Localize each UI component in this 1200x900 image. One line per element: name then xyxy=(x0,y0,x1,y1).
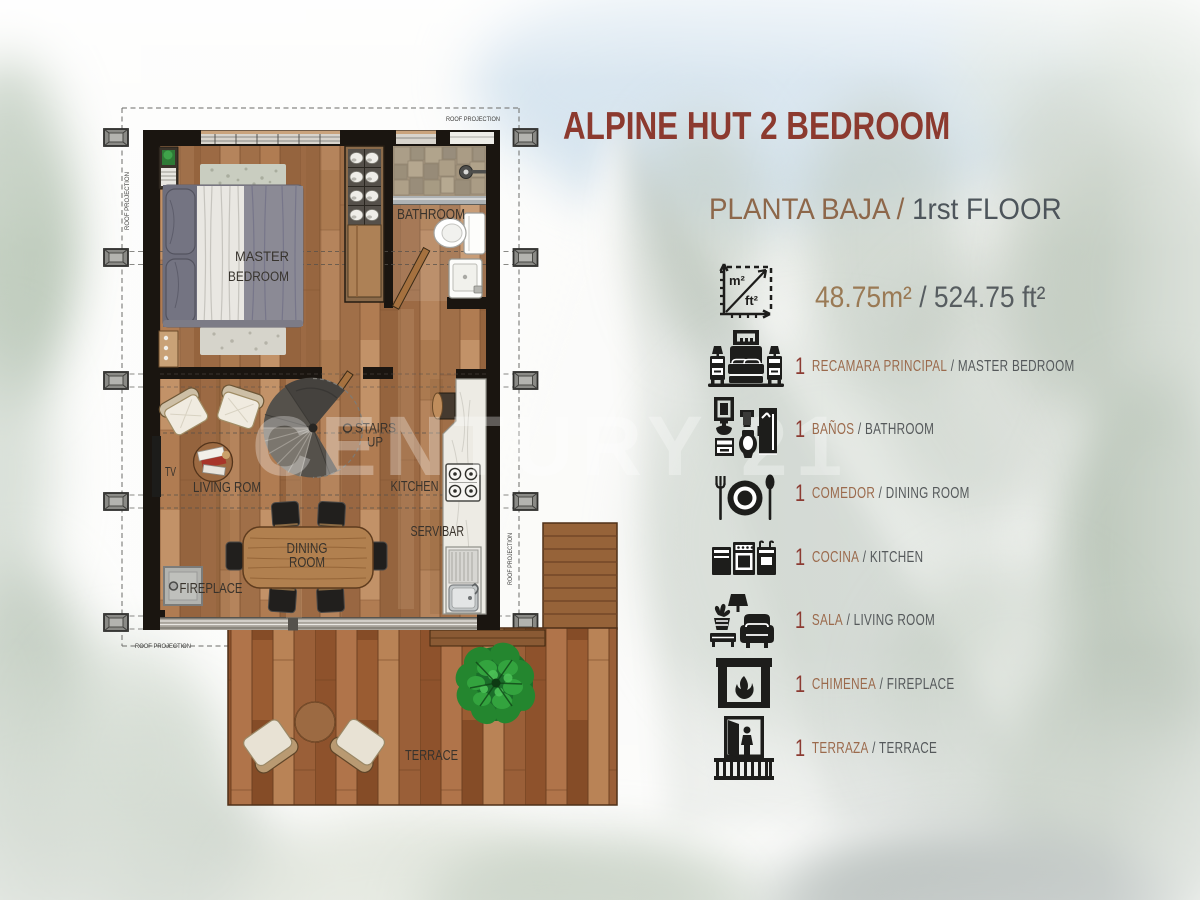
svg-text:BATHROOM: BATHROOM xyxy=(397,206,465,223)
svg-text:ft²: ft² xyxy=(745,293,759,308)
svg-text:ROOF PROJECTION: ROOF PROJECTION xyxy=(135,643,191,650)
svg-text:ROOF PROJECTION: ROOF PROJECTION xyxy=(446,116,500,123)
svg-text:ROOF PROJECTION: ROOF PROJECTION xyxy=(124,172,131,230)
svg-text:TV: TV xyxy=(165,464,176,479)
svg-text:BEDROOM: BEDROOM xyxy=(228,269,289,284)
svg-text:ROOF PROJECTION: ROOF PROJECTION xyxy=(507,533,514,585)
svg-text:ROOM: ROOM xyxy=(289,554,325,571)
svg-text:m²: m² xyxy=(729,273,746,288)
svg-text:SERVIBAR: SERVIBAR xyxy=(411,523,465,540)
svg-text:FIREPLACE: FIREPLACE xyxy=(180,581,243,597)
svg-text:LIVING ROM: LIVING ROM xyxy=(193,479,261,496)
svg-text:MASTER: MASTER xyxy=(235,249,289,264)
svg-text:TERRACE: TERRACE xyxy=(405,748,458,764)
